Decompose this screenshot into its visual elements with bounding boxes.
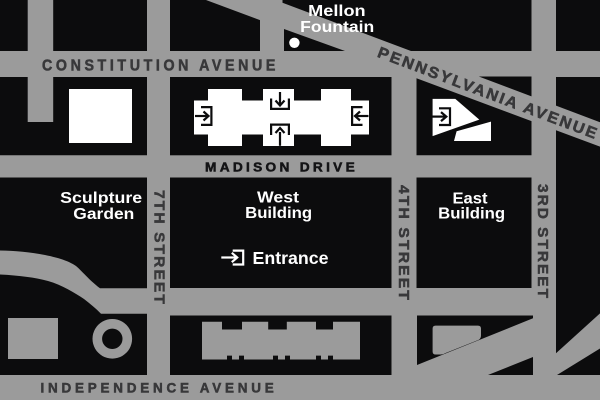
svg-text:Building: Building (438, 205, 505, 222)
svg-text:3RD STREET: 3RD STREET (534, 184, 551, 300)
svg-text:Building: Building (245, 205, 312, 222)
svg-text:Garden: Garden (73, 206, 134, 223)
svg-text:Fountain: Fountain (300, 19, 374, 36)
svg-text:MADISON DRIVE: MADISON DRIVE (205, 161, 358, 175)
svg-text:Mellon: Mellon (308, 3, 366, 20)
svg-text:West: West (257, 190, 299, 207)
svg-text:Entrance: Entrance (253, 248, 329, 268)
svg-text:4TH STREET: 4TH STREET (395, 185, 412, 302)
svg-text:CONSTITUTION AVENUE: CONSTITUTION AVENUE (42, 58, 279, 75)
svg-text:Sculpture: Sculpture (60, 190, 142, 207)
svg-text:7TH STREET: 7TH STREET (151, 190, 168, 306)
svg-text:INDEPENDENCE AVENUE: INDEPENDENCE AVENUE (41, 381, 278, 397)
